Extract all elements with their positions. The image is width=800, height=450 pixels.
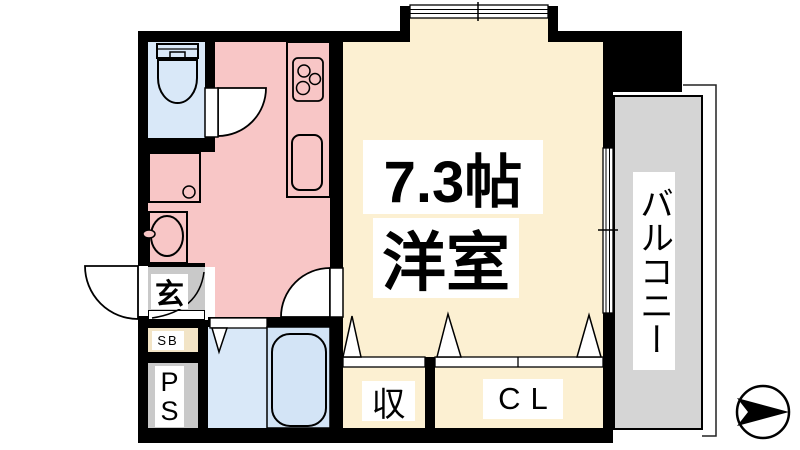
pipe-space-label: P S — [155, 366, 184, 427]
entrance-label: 玄 — [151, 274, 188, 309]
wall-bay-left — [400, 6, 410, 42]
closet-text: CL — [488, 381, 558, 417]
wall-storage-closet-divider — [425, 357, 435, 428]
wall-ps-bath-divider — [198, 320, 208, 443]
entrance-text: 玄 — [155, 271, 184, 313]
wall-sb-ps-divider — [138, 352, 198, 363]
wall-kitchen-main-lower — [330, 317, 343, 443]
wall-top-left — [138, 31, 400, 42]
toilet-room — [148, 42, 205, 138]
wall-left-lower — [138, 316, 148, 443]
shoe-box-text: SB — [157, 333, 178, 348]
kitchen-hallway — [215, 42, 330, 317]
wall-bottom — [138, 428, 613, 443]
north-arrow-icon — [737, 386, 789, 438]
wall-basin-entrance-line — [148, 263, 205, 267]
main-room-type-text: 洋室 — [382, 212, 510, 304]
balcony-text: バルコニー — [630, 186, 679, 356]
kitchen-door-leaf — [330, 268, 343, 317]
main-room-type-label: 洋室 — [373, 218, 519, 298]
main-room-size-label: 7.3帖 — [363, 140, 543, 214]
wall-right-upper — [603, 31, 613, 148]
floor-plan: 7.3帖 洋室 バルコニー 玄 SB P S 収 CL — [0, 0, 800, 450]
main-room-size-text: 7.3帖 — [384, 135, 523, 219]
storage-door-track — [343, 357, 425, 367]
shoe-box-label: SB — [152, 331, 184, 350]
main-room-bay — [410, 18, 548, 42]
entrance-door-swing — [85, 266, 138, 319]
closet-label: CL — [483, 379, 563, 419]
wall-block-top-right — [603, 31, 682, 92]
closet-door-track — [435, 357, 603, 367]
wall-bath-top — [208, 317, 343, 327]
bathroom — [208, 327, 330, 428]
storage-label: 収 — [362, 381, 415, 421]
wall-toilet-right-upper — [205, 31, 215, 88]
wall-bay-right — [548, 6, 558, 42]
storage-text: 収 — [372, 377, 406, 426]
wall-kitchen-main-upper — [330, 31, 343, 268]
wall-toilet-bottom — [138, 138, 215, 152]
pipe-space-line2: S — [160, 397, 178, 426]
balcony-label: バルコニー — [633, 172, 675, 370]
hallway-left-strip — [148, 152, 215, 267]
wall-right-lower — [603, 313, 613, 443]
pipe-space-line1: P — [160, 368, 178, 397]
